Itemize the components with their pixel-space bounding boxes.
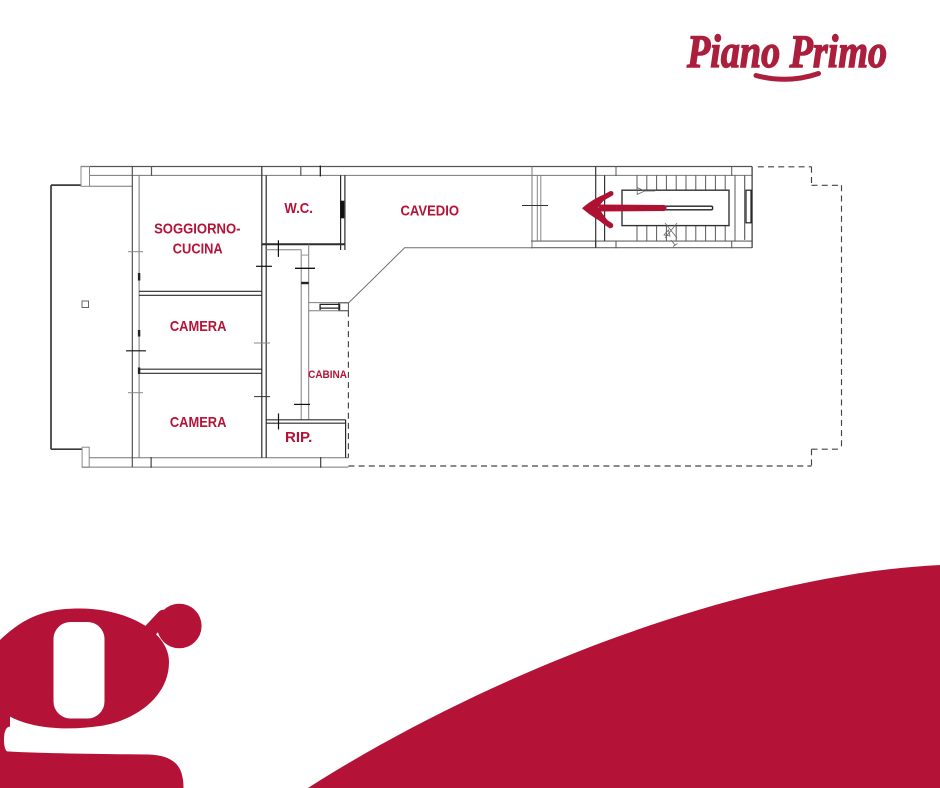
svg-text:CUCINA: CUCINA [173, 240, 223, 257]
svg-text:CAMERA: CAMERA [170, 414, 227, 431]
svg-text:RIP.: RIP. [285, 429, 312, 446]
svg-text:W.C.: W.C. [284, 200, 313, 217]
svg-text:CABINA: CABINA [308, 369, 347, 381]
svg-text:SOGGIORNO-: SOGGIORNO- [154, 221, 240, 238]
svg-text:Piano Primo: Piano Primo [686, 26, 887, 78]
svg-text:CAMERA: CAMERA [170, 318, 227, 335]
svg-text:CAVEDIO: CAVEDIO [401, 203, 460, 220]
